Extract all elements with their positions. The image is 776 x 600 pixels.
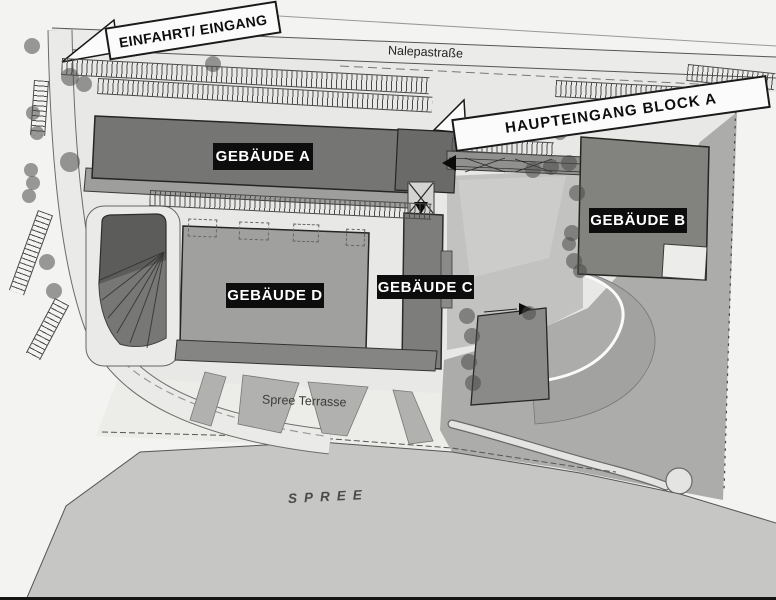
- skylight-outline: [188, 218, 218, 237]
- building-b-notch: [662, 244, 707, 280]
- building-b-label: GEBÄUDE B: [589, 208, 687, 233]
- skylight-outline: [346, 229, 366, 247]
- site-plan: Nalepastraße EINFAHRT/ EINGANG HAUPTEING…: [0, 0, 776, 600]
- building-c-label: GEBÄUDE C: [377, 275, 474, 299]
- annex-building: [471, 308, 549, 405]
- skylight-outline: [239, 221, 270, 240]
- building-d-label: GEBÄUDE D: [226, 283, 324, 308]
- skylight-outline: [293, 224, 320, 243]
- lookout-circle: [666, 468, 692, 494]
- terrace-label: Spree Terrasse: [262, 393, 347, 410]
- building-a-label: GEBÄUDE A: [213, 143, 313, 170]
